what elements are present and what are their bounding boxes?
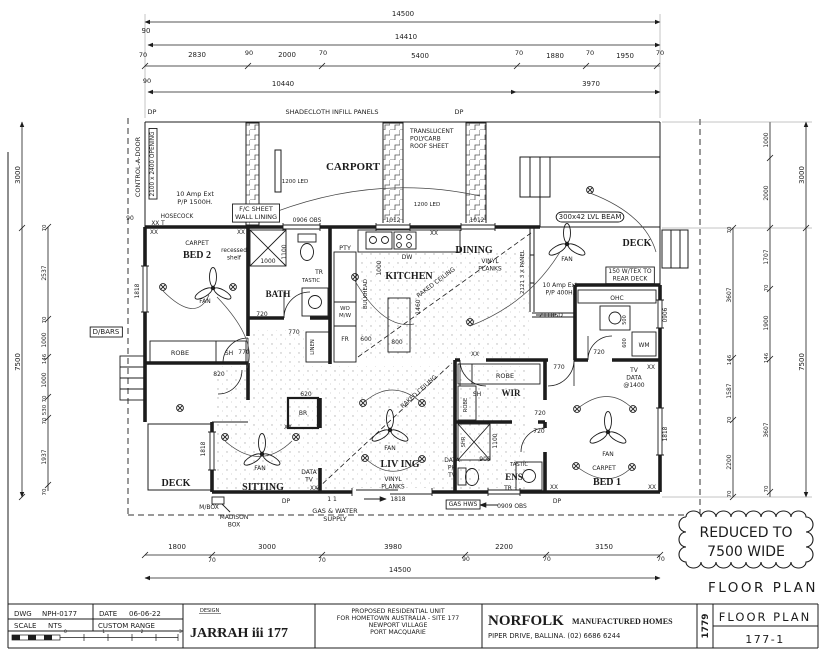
- plan-label: 820: [213, 371, 225, 378]
- external-steps: [662, 230, 688, 268]
- deck-steps: [520, 157, 550, 197]
- plan-label: TR: [503, 485, 512, 492]
- plan-label: 1012: [470, 218, 485, 224]
- plan-label: 70: [656, 49, 664, 57]
- plan-label: 1950: [616, 52, 634, 60]
- plan-label: VINYLPLANKS: [478, 258, 502, 273]
- plan-label: 600: [622, 338, 628, 348]
- plan-label: LIV ING: [381, 459, 420, 470]
- plan-label: HOSECOCK: [161, 214, 194, 220]
- date-value: 06-06-22: [129, 610, 161, 618]
- plan-label: 1460: [415, 299, 422, 314]
- plan-label: XX T: [151, 221, 165, 227]
- plan-label: ROBE: [496, 372, 514, 380]
- plan-label: 1 1: [327, 496, 337, 503]
- plan-label: 1937: [41, 449, 48, 464]
- plan-label: DP: [553, 498, 562, 505]
- glass-panels: [530, 227, 575, 317]
- plan-label: M/BOX: [199, 504, 219, 511]
- plan-label: 530: [42, 404, 48, 415]
- plan-label: 720: [533, 428, 545, 435]
- company-name: NORFOLK: [488, 613, 564, 629]
- plan-label: 3607: [763, 422, 770, 437]
- plan-label: SHADECLOTH INFILL PANELS: [286, 108, 379, 116]
- plan-label: 90: [462, 556, 470, 563]
- reduced-note: REDUCED TO 7500 WIDE: [679, 511, 813, 568]
- plan-label: 2100 x 2400 OPENING: [150, 131, 156, 197]
- plan-label: 770: [238, 349, 250, 356]
- project-line2: FOR HOMETOWN AUSTRALIA - SITE 177: [337, 615, 460, 622]
- plan-label: TASTIC: [301, 278, 320, 284]
- plan-label: 1818: [663, 426, 669, 441]
- plan-label: DINING: [455, 245, 492, 256]
- plan-label: 1012: [386, 218, 401, 224]
- plan-label: 5400: [411, 52, 429, 60]
- fan-icon: [588, 412, 627, 446]
- plan-label: 90: [245, 49, 253, 57]
- project-line1: PROPOSED RESIDENTIAL UNIT: [351, 608, 445, 615]
- plan-label: 1000: [763, 132, 770, 147]
- plan-label: 720: [534, 410, 546, 417]
- company-address: PIPER DRIVE, BALLINA. (02) 6686 6244: [488, 632, 620, 640]
- plan-label: 1587: [726, 383, 733, 398]
- plan-label: FAN: [602, 451, 614, 458]
- plan-label: 3970: [582, 80, 600, 88]
- plan-label: recessedshelf: [221, 248, 247, 261]
- plan-label: 70: [208, 557, 216, 564]
- plan-label: 1000: [41, 332, 48, 347]
- plan-label: BATH: [266, 289, 291, 299]
- plan-label: 70: [139, 51, 147, 59]
- plan-label: 1818: [135, 283, 141, 298]
- plan-label: XX: [647, 365, 655, 371]
- reduced-note-line1: REDUCED TO: [699, 525, 792, 541]
- plan-label: 1000: [376, 260, 383, 275]
- plan-label: 7500: [14, 353, 22, 371]
- plan-label: 70: [42, 316, 48, 323]
- plan-label: OHC: [610, 295, 623, 302]
- plan-label: TR: [314, 269, 323, 276]
- plan-label: 2118SD: [539, 312, 563, 319]
- plan-label: 770: [288, 329, 300, 336]
- plan-label: 2830: [188, 51, 206, 59]
- plan-label: 2121 3 X PANEL: [520, 249, 526, 294]
- plan-label: 70: [42, 224, 48, 231]
- plan-label: WM: [638, 342, 649, 349]
- plan-label: MADISONBOX: [220, 514, 249, 529]
- plan-label: DECK: [162, 478, 191, 489]
- plan-label: 2200: [726, 454, 733, 469]
- plan-label: 146: [764, 352, 770, 363]
- plan-label: 70: [727, 226, 733, 233]
- plan-label: DECK: [623, 238, 652, 249]
- plan-label: XX: [648, 485, 656, 491]
- plan-label: 90: [126, 215, 134, 222]
- plan-label: 70: [42, 395, 48, 402]
- plan-label: XX: [430, 231, 438, 237]
- plan-label: DP: [282, 498, 291, 505]
- scale-label: SCALE: [14, 622, 36, 630]
- dwg-value: NPH-0177: [42, 610, 77, 618]
- plan-label: 1000: [41, 372, 48, 387]
- plan-label: 1200 LED: [282, 179, 309, 185]
- plan-label: 70: [42, 488, 48, 495]
- plan-label: ROBE: [171, 349, 189, 357]
- plan-label: 3150: [595, 543, 613, 551]
- plan-label: 1200 LED: [414, 202, 441, 208]
- plan-label: 0906 OBS: [293, 218, 322, 224]
- company-type: MANUFACTURED HOMES: [572, 617, 673, 626]
- plan-label: 2200: [495, 543, 513, 551]
- plan-label: DW: [402, 254, 413, 261]
- plan-label: XX: [284, 425, 292, 431]
- plan-label: WOM/W: [339, 306, 352, 319]
- plan-label: 70: [727, 416, 733, 423]
- plan-label: 620: [300, 391, 312, 398]
- range-value: CUSTOM RANGE: [98, 622, 155, 630]
- plan-label: TVDATA@1400: [623, 367, 644, 389]
- plan-label: 70: [318, 557, 326, 564]
- plan-label: 14500: [392, 10, 414, 18]
- plan-label: 70: [319, 49, 327, 57]
- plan-label: 90: [143, 77, 151, 85]
- plan-label: 3000: [14, 166, 22, 184]
- design-name: JARRAH iii 177: [190, 626, 288, 641]
- plan-label: FAN: [384, 445, 396, 452]
- sheet-title: FLOOR PLAN: [719, 610, 811, 624]
- plan-label: 70: [586, 49, 594, 57]
- plan-label: 70: [657, 556, 665, 563]
- scale-value: NTS: [48, 622, 63, 630]
- plan-label: KITCHEN: [385, 271, 433, 282]
- plan-label: DP: [455, 108, 464, 116]
- plan-label: 70: [727, 490, 733, 497]
- plan-label: ROBE: [463, 398, 469, 413]
- plan-label: SH: [473, 391, 481, 398]
- plan-label: XX: [471, 352, 479, 358]
- plan-label: TASTIC: [509, 462, 528, 468]
- plan-label: FR: [341, 336, 349, 343]
- plan-label: BULKHEAD: [363, 279, 369, 309]
- plan-label: 1707: [763, 249, 770, 264]
- carport-post: [275, 150, 281, 192]
- plan-label: 1818: [201, 441, 207, 456]
- plan-label: 14500: [389, 566, 411, 574]
- plan-label: VINYLPLANKS: [381, 476, 405, 491]
- fan-icon: [193, 268, 232, 302]
- plan-label: 600: [360, 336, 372, 343]
- plan-label: 10 Amp ExtP/P 400H.: [543, 282, 579, 297]
- plan-label: PTY: [339, 244, 351, 252]
- floor-plan-sheet: REDUCED TO 7500 WIDE FLOOR PLAN 14500901…: [0, 0, 826, 650]
- plan-label: 3000: [258, 543, 276, 551]
- plan-label: 2000: [278, 51, 296, 59]
- plan-label: 10 Amp ExtP/P 1500H.: [176, 190, 214, 206]
- plan-label: BED 1: [593, 477, 621, 488]
- plan-label: FAN: [254, 465, 266, 472]
- plan-label: 900: [479, 456, 491, 463]
- plan-label: 90: [142, 27, 151, 35]
- plan-label: 500: [622, 315, 628, 325]
- plan-label: 70: [764, 284, 770, 291]
- design-label: DESIGN: [200, 608, 220, 614]
- plan-label: 70: [42, 417, 48, 424]
- job-number: 1779: [701, 613, 711, 638]
- plan-label: F/C SHEETWALL LINING: [235, 205, 277, 221]
- project-line3: NEWPORT VILLAGE: [369, 622, 428, 629]
- plan-label: 770: [553, 364, 565, 371]
- plan-label: 10440: [272, 80, 294, 88]
- plan-label: BED 2: [183, 250, 211, 261]
- plan-label: CARPORT: [326, 161, 381, 173]
- plan-label: 146: [42, 353, 48, 364]
- plan-label: DP: [148, 108, 157, 116]
- plan-label: SH: [225, 350, 233, 357]
- plan-label: 3000: [798, 166, 806, 184]
- plan-label: XX: [550, 485, 558, 491]
- plan-label: 150 W/TEX TOREAR DECK: [608, 268, 651, 283]
- project-line4: PORT MACQUARIE: [370, 629, 426, 636]
- plan-label: 0906: [663, 307, 669, 322]
- plan-label: FAN: [561, 256, 573, 263]
- fan-icon: [547, 224, 586, 258]
- plan-label: XX: [150, 230, 158, 236]
- plan-label: 70: [764, 485, 770, 492]
- plan-label: 14410: [395, 33, 417, 41]
- meter-box: [212, 497, 224, 504]
- plan-label: SHR: [461, 436, 467, 447]
- date-label: DATE: [99, 610, 117, 618]
- plan-label: 1100: [281, 244, 288, 259]
- plan-label: CONTROL-A-DOOR: [134, 136, 142, 197]
- plan-label: 2537: [41, 265, 48, 280]
- plan-label: BR: [299, 410, 307, 417]
- plan-label: 70: [515, 49, 523, 57]
- plan-label: 720: [256, 311, 268, 318]
- plan-label: TRANSLUCENTPOLYCARBROOF SHEET: [409, 128, 454, 150]
- plan-label: 720: [593, 349, 605, 356]
- plan-label: 300x42 LVL BEAM: [559, 213, 622, 221]
- plan-label: 1818: [390, 496, 405, 503]
- light-icon: [160, 284, 167, 291]
- plan-label: CARPET: [185, 240, 209, 247]
- reduced-note-line2: 7500 WIDE: [707, 544, 785, 560]
- plan-label: CARPET: [592, 465, 616, 472]
- plan-label: SITTING: [242, 482, 284, 493]
- bath-wc: [301, 244, 314, 261]
- plan-label: GAS HWS: [449, 501, 478, 508]
- plan-label: 1000: [260, 258, 275, 265]
- plan-label: WIR: [501, 388, 521, 398]
- plan-label: 0909 OBS: [497, 503, 527, 510]
- plan-label: 1900: [763, 315, 770, 330]
- plan-label: 146: [727, 354, 733, 365]
- sheet-number: 177-1: [745, 633, 784, 646]
- plan-label: FAN: [199, 298, 211, 305]
- plan-label: 3980: [384, 543, 402, 551]
- plan-label: 2000: [763, 185, 770, 200]
- plan-label: 3607: [726, 287, 733, 302]
- plan-label: 1880: [546, 52, 564, 60]
- plan-label: 1100: [492, 433, 499, 448]
- plan-label: XX: [237, 230, 245, 236]
- plan-label: 70: [543, 556, 551, 563]
- bath-wc-tank: [298, 234, 316, 242]
- title-block: 0 1 2 3 4 5 DWG NPH-0177 DATE 06-06-22 S…: [8, 604, 818, 648]
- plan-label: LINEN: [310, 339, 316, 355]
- plan-label: D/BARS: [93, 328, 120, 336]
- plan-label: 800: [391, 339, 403, 346]
- roof-batten-hatch: [466, 123, 486, 226]
- plan-label: 1800: [168, 543, 186, 551]
- plan-label: ENS: [505, 472, 523, 482]
- roof-batten-hatch: [383, 123, 403, 226]
- dwg-label: DWG: [14, 610, 32, 618]
- plan-label: 7500: [798, 353, 806, 371]
- plan-caption: FLOOR PLAN: [708, 580, 818, 596]
- plan-label: XX: [310, 486, 318, 492]
